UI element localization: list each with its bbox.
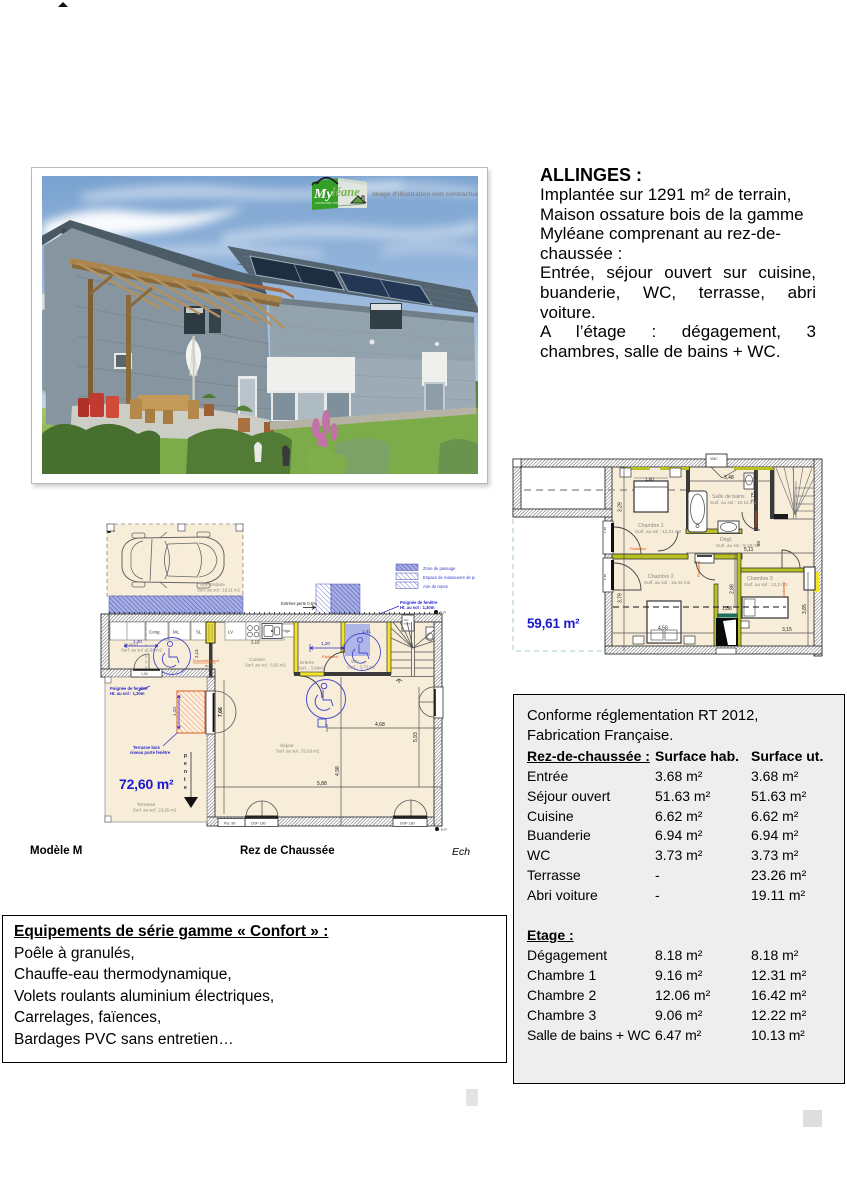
svg-text:Surf. au sol : 8,18 m2: Surf. au sol : 8,18 m2: [716, 543, 760, 548]
svg-text:Surf. au sol : 23,26 m2: Surf. au sol : 23,26 m2: [133, 808, 177, 813]
svg-text:Surf. au sol : 16,42 m2: Surf. au sol : 16,42 m2: [644, 580, 691, 585]
svg-text:E.P.: E.P.: [441, 828, 447, 832]
svg-text:Por. 90: Por. 90: [224, 822, 235, 826]
svg-text:4,56: 4,56: [658, 626, 668, 632]
svg-text:image d'illustration non contr: image d'illustration non contractuelle: [372, 191, 478, 198]
svg-text:Surf. au sol : 19,11 m2: Surf. au sol : 19,11 m2: [197, 588, 241, 593]
svg-text:72,60 m²: 72,60 m²: [119, 776, 174, 792]
svg-text:Encombrement: Encombrement: [193, 659, 220, 663]
svg-text:VMC: VMC: [710, 457, 718, 461]
svg-text:Radiateur: Radiateur: [782, 581, 786, 598]
svg-text:3,48: 3,48: [724, 475, 734, 481]
svg-text:Radiateur: Radiateur: [697, 560, 701, 577]
svg-text:Surf. : 3,73 m2: Surf. : 3,73 m2: [347, 665, 376, 670]
svg-text:Surf. au sol : 10,13 m2: Surf. au sol : 10,13 m2: [710, 500, 757, 505]
svg-text:3,85: 3,85: [802, 604, 808, 614]
svg-text:Espace de manoeuvre de porte: Espace de manoeuvre de porte: [423, 575, 475, 580]
svg-text:Surf. : 3,68m2: Surf. : 3,68m2: [298, 666, 326, 671]
svg-text:Radiateur: Radiateur: [754, 510, 758, 527]
svg-text:F 90: F 90: [603, 574, 607, 580]
svg-text:1,41: 1,41: [362, 629, 371, 634]
svg-text:e: e: [184, 761, 187, 767]
svg-text:n: n: [184, 769, 187, 775]
svg-text:DOF 180: DOF 180: [251, 822, 266, 826]
svg-text:1,34: 1,34: [141, 672, 148, 676]
svg-text:1,60: 1,60: [645, 477, 654, 482]
svg-text:My: My: [313, 187, 333, 202]
svg-text:ML: ML: [173, 630, 180, 635]
svg-text:Entrées perte 0,5%: Entrées perte 0,5%: [281, 601, 317, 606]
svg-text:Ht. au sol : 1,30m: Ht. au sol : 1,30m: [110, 691, 145, 696]
svg-text:1,20: 1,20: [172, 707, 177, 716]
svg-text:Ht. au sol : 1,30m: Ht. au sol : 1,30m: [400, 605, 435, 610]
svg-text:e: e: [184, 785, 187, 791]
svg-text:3,15: 3,15: [782, 627, 792, 633]
svg-text:4,98: 4,98: [335, 766, 341, 776]
svg-text:SL: SL: [196, 630, 202, 635]
svg-text:5,93: 5,93: [413, 732, 419, 742]
svg-text:2,88: 2,88: [730, 584, 736, 594]
svg-text:Frigo: Frigo: [281, 628, 291, 633]
svg-text:1,20: 1,20: [321, 641, 330, 646]
svg-text:3,29: 3,29: [618, 502, 624, 512]
svg-text:1,88: 1,88: [722, 606, 732, 612]
svg-text:Surf. au sol : 6,94 m2: Surf. au sol : 6,94 m2: [121, 648, 162, 653]
svg-text:90x45: 90x45: [205, 664, 214, 668]
svg-text:Zone de passage: Zone de passage: [423, 566, 456, 571]
svg-text:4,68: 4,68: [375, 722, 385, 728]
svg-text:5,88: 5,88: [317, 781, 327, 787]
svg-text:Radiateur: Radiateur: [322, 655, 339, 659]
svg-text:Surf. au sol : 6,62 m2: Surf. au sol : 6,62 m2: [245, 663, 286, 668]
svg-text:3,79: 3,79: [618, 593, 624, 603]
svg-text:Radiateur: Radiateur: [630, 547, 647, 551]
svg-text:Surf. au sol : 51,63 m2: Surf. au sol : 51,63 m2: [276, 749, 320, 754]
svg-text:niveau porte fenêtre: niveau porte fenêtre: [130, 750, 171, 755]
svg-text:construction bois: construction bois: [315, 201, 339, 205]
svg-text:DOF 180: DOF 180: [400, 822, 415, 826]
svg-text:léane: léane: [332, 185, 360, 199]
svg-text:LV: LV: [228, 630, 233, 635]
svg-text:2,13: 2,13: [194, 649, 199, 658]
svg-text:Surf. au sol : 12,31 m2: Surf. au sol : 12,31 m2: [635, 529, 682, 534]
svg-text:F 90: F 90: [603, 527, 607, 533]
svg-text:7,66: 7,66: [218, 707, 224, 717]
svg-text:Cong.: Cong.: [149, 630, 161, 635]
svg-text:2,15: 2,15: [251, 640, 260, 645]
svg-text:Aire de repos: Aire de repos: [423, 584, 448, 589]
svg-text:p: p: [184, 753, 187, 759]
svg-text:1,20: 1,20: [133, 639, 142, 644]
svg-text:E.P.: E.P.: [440, 611, 446, 615]
